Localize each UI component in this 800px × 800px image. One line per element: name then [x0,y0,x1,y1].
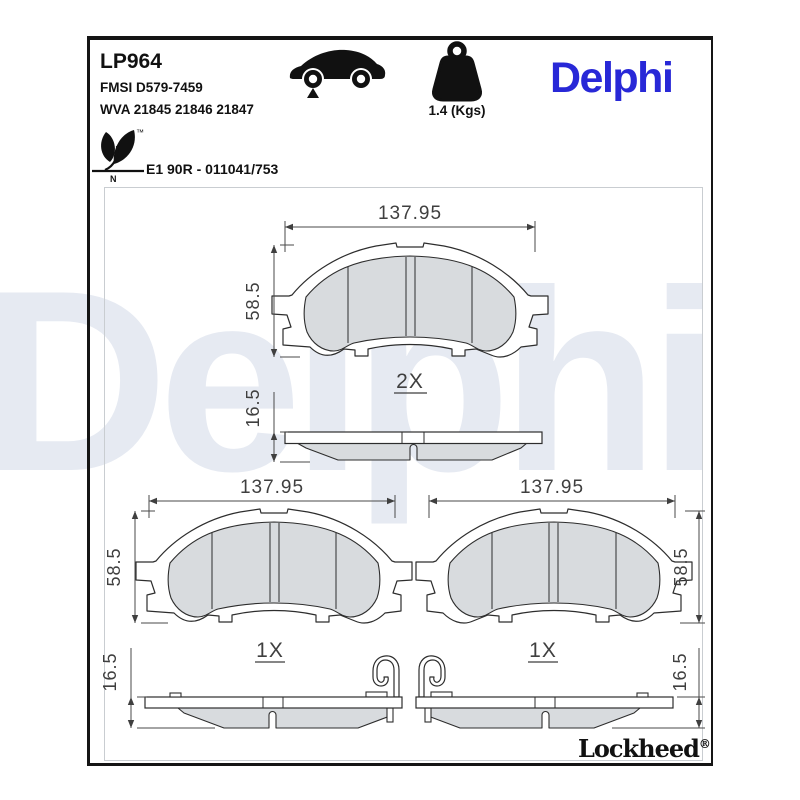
brand-logo: Delphi [550,54,710,103]
homologation-number: E1 90R - 011041/753 [146,161,278,177]
weight-value: 1.4 (Kgs) [412,103,502,118]
front-axle-car-icon [286,42,388,100]
bottom-right-pad-side-view [416,656,673,728]
eco-letter: N [110,174,117,184]
top-pad-height-dim: 58.5 [243,281,263,320]
top-pad-front-view [272,243,548,357]
bottom-right-pad-drawing: 137.95 58.5 16.5 1X [416,477,705,728]
sub-brand-logo: Lockheed® [578,734,710,763]
part-number: LP964 [100,50,162,74]
bottom-left-pad-thickness-dim: 16.5 [100,652,120,691]
bottom-left-pad-width-dim: 137.95 [240,477,304,498]
weight-icon [425,40,489,104]
bottom-right-pad-thickness-dim: 16.5 [670,652,690,691]
brake-pad-datasheet: Delphi [0,0,800,800]
wva-code: WVA 21845 21846 21847 [100,102,254,117]
bottom-left-pad-quantity: 1X [256,639,284,662]
registered-symbol: ® [699,737,710,751]
bottom-right-pad-width-dim: 137.95 [520,477,584,498]
top-pad-width-dim: 137.95 [378,203,442,224]
sub-brand-name: Lockheed [578,734,699,763]
bottom-left-pad-side-view [145,656,402,728]
trademark-symbol: ™ [136,128,144,137]
front-axle-marker-icon [307,88,319,98]
bottom-right-pad-height-dim: 58.5 [671,547,691,586]
bottom-left-pad-front-view [136,509,412,623]
fmsi-code: FMSI D579-7459 [100,80,203,95]
top-pad-side-view [285,432,542,460]
top-pad-quantity: 2X [396,370,424,393]
bottom-right-pad-front-view [416,509,692,623]
technical-drawing-canvas: 137.95 58.5 16.5 2X 137.95 58.5 [0,0,800,800]
top-pad-drawing: 137.95 58.5 16.5 2X [243,203,548,462]
top-pad-thickness-dim: 16.5 [243,388,263,427]
bottom-left-pad-height-dim: 58.5 [104,547,124,586]
bottom-left-pad-drawing: 137.95 58.5 16.5 1X [100,477,412,728]
eco-leaf-icon: N ™ [90,126,146,184]
bottom-right-pad-quantity: 1X [529,639,557,662]
